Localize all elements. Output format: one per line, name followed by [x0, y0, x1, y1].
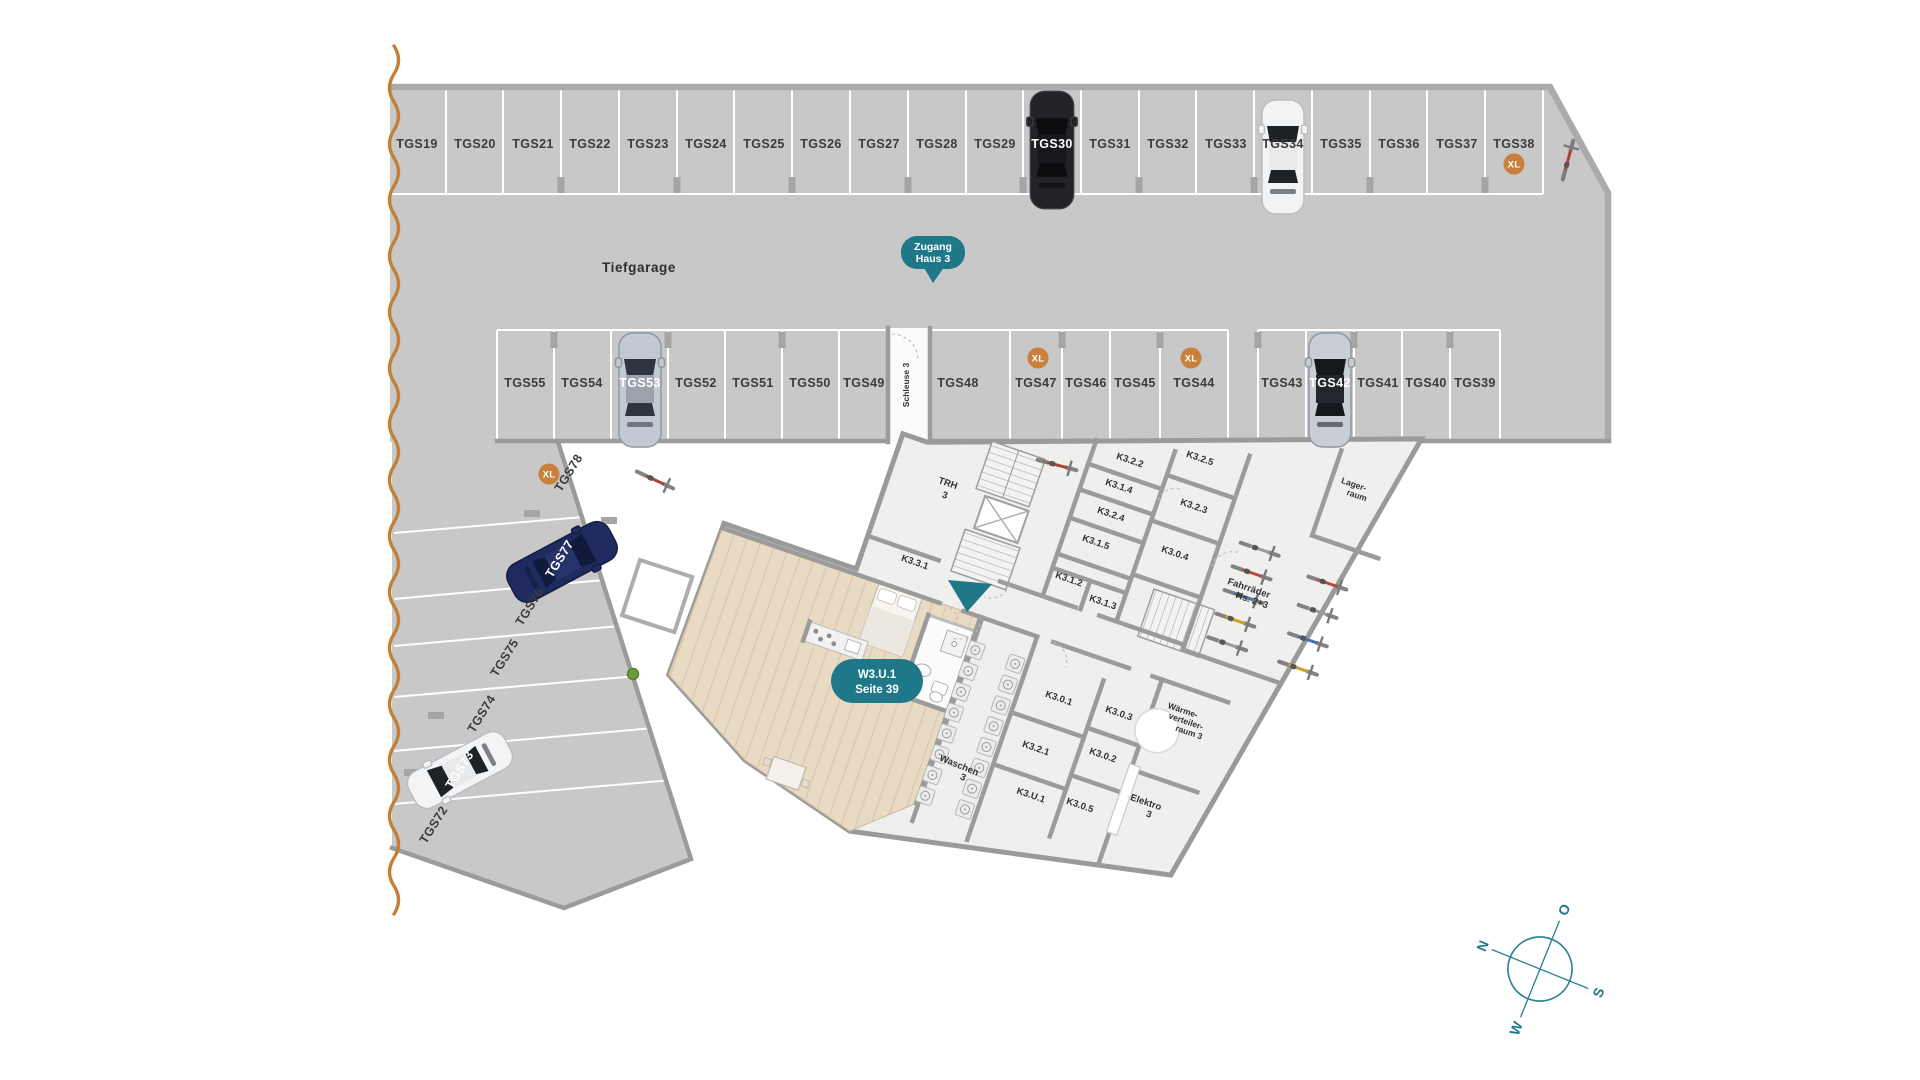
car-tgs53	[616, 333, 665, 447]
stall-label-tgs51: TGS51	[732, 376, 774, 390]
stall-label-tgs20: TGS20	[454, 137, 496, 151]
stall-label-tgs43: TGS43	[1261, 376, 1303, 390]
stall-label-tgs31: TGS31	[1089, 137, 1131, 151]
stall-label-tgs39: TGS39	[1454, 376, 1496, 390]
stall-label-tgs48: TGS48	[937, 376, 979, 390]
xl-badge-tgs47: XL	[1028, 348, 1049, 369]
stall-label-tgs22: TGS22	[569, 137, 611, 151]
svg-text:XL: XL	[543, 470, 556, 481]
stall-label-tgs55: TGS55	[504, 376, 546, 390]
floorplan-page: TGS19 TGS20 TGS21 TGS22 TGS23 TGS24 TGS2…	[0, 0, 1920, 1080]
floor-plan-canvas: TGS19 TGS20 TGS21 TGS22 TGS23 TGS24 TGS2…	[0, 0, 1920, 1080]
stall-label-tgs29: TGS29	[974, 137, 1016, 151]
stall-label-tgs41: TGS41	[1357, 376, 1399, 390]
svg-text:XL: XL	[1508, 160, 1521, 171]
stall-label-tgs19: TGS19	[396, 137, 438, 151]
stall-label-tgs26: TGS26	[800, 137, 842, 151]
compass-rose: N O S W	[1449, 878, 1632, 1061]
west-wing-floor	[392, 442, 691, 908]
stall-label-tgs46: TGS46	[1065, 376, 1107, 390]
stall-label-tgs30: TGS30	[1031, 137, 1073, 151]
stall-label-tgs25: TGS25	[743, 137, 785, 151]
stall-label-tgs24: TGS24	[685, 137, 727, 151]
stall-label-tgs33: TGS33	[1205, 137, 1247, 151]
stall-label-tgs44: TGS44	[1173, 376, 1215, 390]
stall-label-tgs38: TGS38	[1493, 137, 1535, 151]
st all-label-tgs42: TGS42	[1309, 376, 1351, 390]
xl-badge-tgs38: XL	[1504, 154, 1525, 175]
stall-label-tgs37: TGS37	[1436, 137, 1478, 151]
stall-label-tgs52: TGS52	[675, 376, 717, 390]
compass-letter-n: N	[1473, 938, 1492, 953]
compass-letter-w: W	[1506, 1018, 1526, 1037]
car-tgs34	[1259, 100, 1308, 214]
stall-label-tgs21: TGS21	[512, 137, 554, 151]
stall-label-tgs54: TGS54	[561, 376, 603, 390]
stall-label-tgs35: TGS35	[1320, 137, 1362, 151]
svg-text:W3.U.1: W3.U.1	[858, 669, 897, 681]
area-label-tiefgarage: Tiefgarage	[602, 260, 676, 275]
svg-text:Haus 3: Haus 3	[916, 253, 951, 265]
stall-label-tgs34: TGS34	[1262, 137, 1304, 151]
stall-label-tgs32: TGS32	[1147, 137, 1189, 151]
compass-letter-s: S	[1589, 985, 1607, 1000]
svg-text:Zugang: Zugang	[914, 241, 952, 253]
stall-label-tgs50: TGS50	[789, 376, 831, 390]
stall-label-tgs36: TGS36	[1378, 137, 1420, 151]
unit-badge[interactable]: W3.U.1 Seite 39	[831, 659, 923, 703]
svg-text:Seite 39: Seite 39	[855, 684, 898, 696]
xl-badge-tgs78: XL	[539, 464, 560, 485]
stall-label-tgs53: TGS53	[619, 376, 661, 390]
stall-label-tgs23: TGS23	[627, 137, 669, 151]
west-wing-alcove	[622, 560, 692, 632]
stall-label-tgs49: TGS49	[843, 376, 885, 390]
room-label-schleuse: Schleuse 3	[901, 363, 911, 408]
plant-icon	[628, 669, 639, 680]
stall-label-tgs47: TGS47	[1015, 376, 1057, 390]
stall-label-tgs40: TGS40	[1405, 376, 1447, 390]
svg-text:XL: XL	[1032, 354, 1045, 365]
svg-text:XL: XL	[1185, 354, 1198, 365]
compass-letter-o: O	[1555, 902, 1574, 918]
xl-badge-tgs44: XL	[1181, 348, 1202, 369]
bicycle-icon-wing	[632, 463, 679, 496]
stall-label-tgs45: TGS45	[1114, 376, 1156, 390]
stall-label-tgs27: TGS27	[858, 137, 900, 151]
car-tgs42	[1306, 333, 1355, 447]
stall-label-tgs28: TGS28	[916, 137, 958, 151]
